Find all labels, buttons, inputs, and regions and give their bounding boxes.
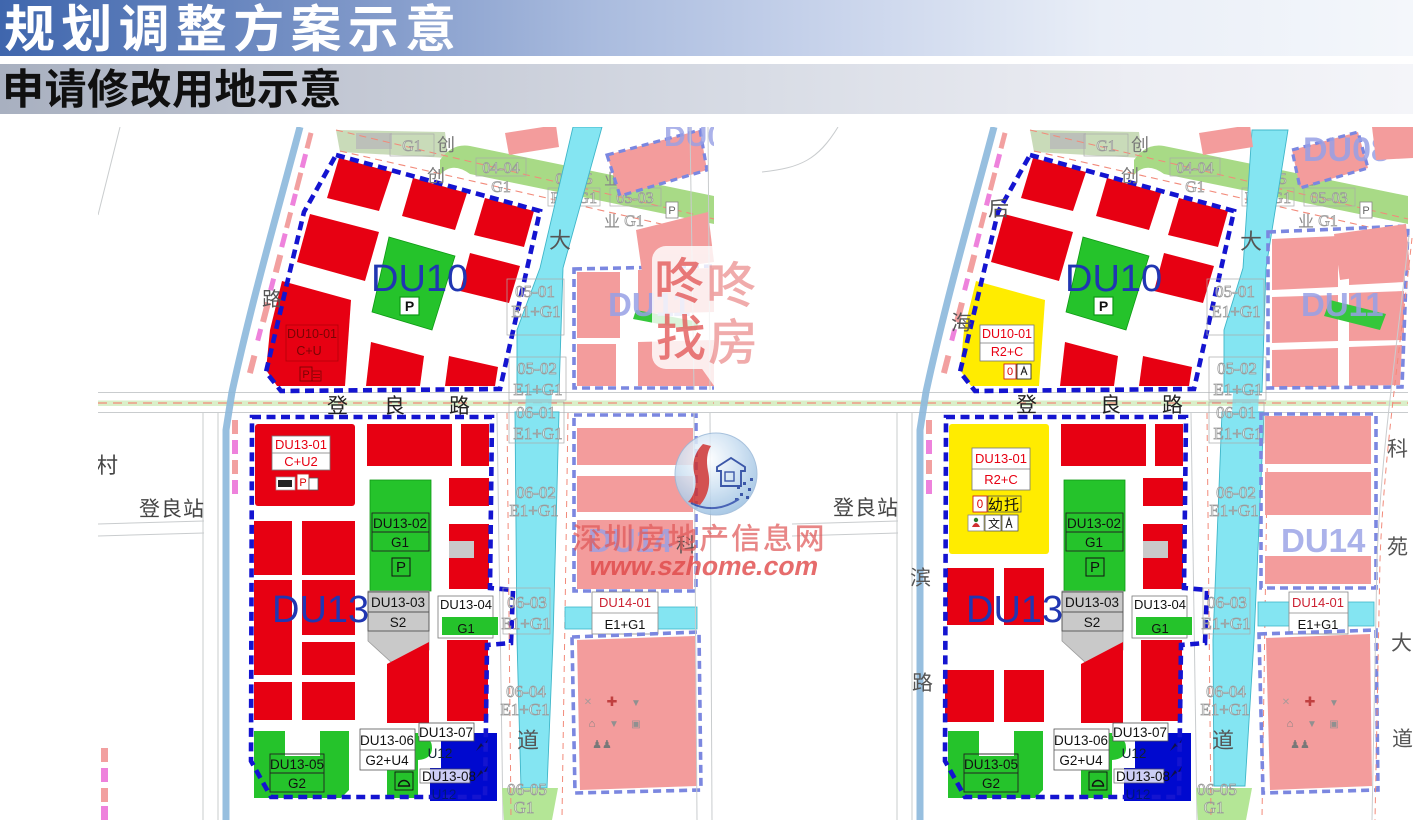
svg-text:05-01: 05-01 <box>1215 282 1255 301</box>
svg-text:06-01: 06-01 <box>1216 403 1256 422</box>
svg-text:DU14: DU14 <box>1281 522 1366 559</box>
svg-text:▼: ▼ <box>609 719 619 730</box>
svg-text:R2+C: R2+C <box>991 345 1023 359</box>
svg-text:DU08: DU08 <box>664 127 714 153</box>
svg-text:▼: ▼ <box>1307 719 1317 730</box>
svg-text:✕: ✕ <box>584 697 592 708</box>
svg-text:G2: G2 <box>982 776 1000 791</box>
svg-text:DU13-06: DU13-06 <box>1054 733 1108 748</box>
svg-text:P: P <box>405 298 414 314</box>
svg-text:DU14-01: DU14-01 <box>1292 595 1344 610</box>
svg-text:04-04: 04-04 <box>1176 160 1213 177</box>
svg-text:U12: U12 <box>428 746 453 761</box>
svg-text:DU13-03: DU13-03 <box>1065 595 1119 610</box>
svg-text:E1+G1: E1+G1 <box>1201 614 1250 633</box>
svg-text:DU13-05: DU13-05 <box>270 757 324 772</box>
svg-text:S2: S2 <box>390 615 407 630</box>
svg-text:P: P <box>299 477 306 489</box>
svg-text:05-02: 05-02 <box>1217 359 1257 378</box>
svg-text:DU13: DU13 <box>272 589 369 631</box>
svg-text:G1: G1 <box>514 798 535 817</box>
svg-text:G1: G1 <box>1151 621 1168 636</box>
svg-text:✚: ✚ <box>1305 694 1316 709</box>
svg-text:C+U: C+U <box>296 344 321 358</box>
svg-text:DU10: DU10 <box>371 258 468 300</box>
svg-text:E1+G1: E1+G1 <box>1200 700 1249 719</box>
svg-text:DU11: DU11 <box>1301 286 1384 323</box>
svg-text:G1: G1 <box>402 138 422 155</box>
svg-text:E1+G1: E1+G1 <box>1213 380 1262 399</box>
svg-text:DU13-06: DU13-06 <box>360 733 414 748</box>
svg-text:U12: U12 <box>1122 746 1147 761</box>
svg-text:DU13-01: DU13-01 <box>975 451 1027 466</box>
svg-text:G2+U4: G2+U4 <box>365 753 409 768</box>
svg-text:DU13-07: DU13-07 <box>1113 725 1167 740</box>
svg-text:06-05: 06-05 <box>1197 780 1237 799</box>
svg-text:DU10-01: DU10-01 <box>982 327 1032 341</box>
svg-text:0: 0 <box>1007 366 1013 378</box>
svg-text:DU13-01: DU13-01 <box>275 437 327 452</box>
svg-text:⌂: ⌂ <box>1287 718 1294 730</box>
svg-text:E1+G1: E1+G1 <box>1211 302 1260 321</box>
svg-text:DU13-02: DU13-02 <box>373 516 427 531</box>
svg-text:▼: ▼ <box>1329 698 1339 709</box>
svg-text:P: P <box>1090 559 1100 576</box>
svg-text:G1: G1 <box>1204 798 1225 817</box>
svg-text:E1+G1: E1+G1 <box>1213 424 1262 443</box>
svg-text:DU10-01: DU10-01 <box>287 327 337 341</box>
svg-text:06-03: 06-03 <box>1207 593 1247 612</box>
svg-text:E1+G1: E1+G1 <box>1298 617 1339 632</box>
svg-text:DU13-04: DU13-04 <box>440 597 492 612</box>
svg-text:⌂: ⌂ <box>589 718 596 730</box>
svg-text:P: P <box>396 559 406 576</box>
svg-text:G1: G1 <box>391 535 409 550</box>
svg-text:06-05: 06-05 <box>507 780 547 799</box>
svg-text:G1: G1 <box>1085 535 1103 550</box>
svg-text:DU13-08: DU13-08 <box>1116 769 1170 784</box>
svg-text:▣: ▣ <box>1329 719 1338 730</box>
svg-text:G1: G1 <box>457 621 474 636</box>
svg-text:DU10: DU10 <box>1065 258 1162 300</box>
svg-text:E1+G1: E1+G1 <box>500 700 549 719</box>
svg-text:C+U2: C+U2 <box>284 454 318 469</box>
svg-text:E1+G1: E1+G1 <box>1209 501 1258 520</box>
svg-text:U12: U12 <box>432 787 457 802</box>
svg-text:DU13-07: DU13-07 <box>419 725 473 740</box>
svg-text:05-03: 05-03 <box>1310 190 1347 207</box>
svg-text:P: P <box>1099 298 1108 314</box>
svg-text:DU13-02: DU13-02 <box>1067 516 1121 531</box>
svg-text:www.szhome.com: www.szhome.com <box>586 551 822 581</box>
svg-text:G1: G1 <box>1096 138 1116 155</box>
svg-text:06-04: 06-04 <box>506 682 546 701</box>
svg-text:P: P <box>668 205 675 217</box>
svg-text:DU13-03: DU13-03 <box>371 595 425 610</box>
svg-text:P: P <box>1362 205 1369 217</box>
svg-text:06-02: 06-02 <box>1216 483 1256 502</box>
svg-text:04-04: 04-04 <box>482 160 519 177</box>
svg-text:✚: ✚ <box>607 694 618 709</box>
svg-text:▣: ▣ <box>631 719 640 730</box>
svg-text:P: P <box>302 369 309 381</box>
svg-text:DU13-04: DU13-04 <box>1134 597 1186 612</box>
svg-text:U12: U12 <box>1126 787 1151 802</box>
svg-text:DU13: DU13 <box>966 589 1063 631</box>
svg-text:DU13-08: DU13-08 <box>422 769 476 784</box>
svg-text:0: 0 <box>977 499 983 511</box>
svg-text:G1: G1 <box>1185 179 1205 196</box>
svg-text:06-04: 06-04 <box>1206 682 1246 701</box>
svg-text:♟♟: ♟♟ <box>592 739 612 751</box>
svg-text:R2+C: R2+C <box>984 472 1018 487</box>
svg-text:▼: ▼ <box>631 698 641 709</box>
svg-text:G2+U4: G2+U4 <box>1059 753 1103 768</box>
svg-text:S2: S2 <box>1084 615 1101 630</box>
svg-text:♟♟: ♟♟ <box>1290 739 1310 751</box>
svg-text:✕: ✕ <box>1282 697 1290 708</box>
svg-text:G2: G2 <box>288 776 306 791</box>
svg-text:DU13-05: DU13-05 <box>964 757 1018 772</box>
svg-text:G1: G1 <box>491 179 511 196</box>
